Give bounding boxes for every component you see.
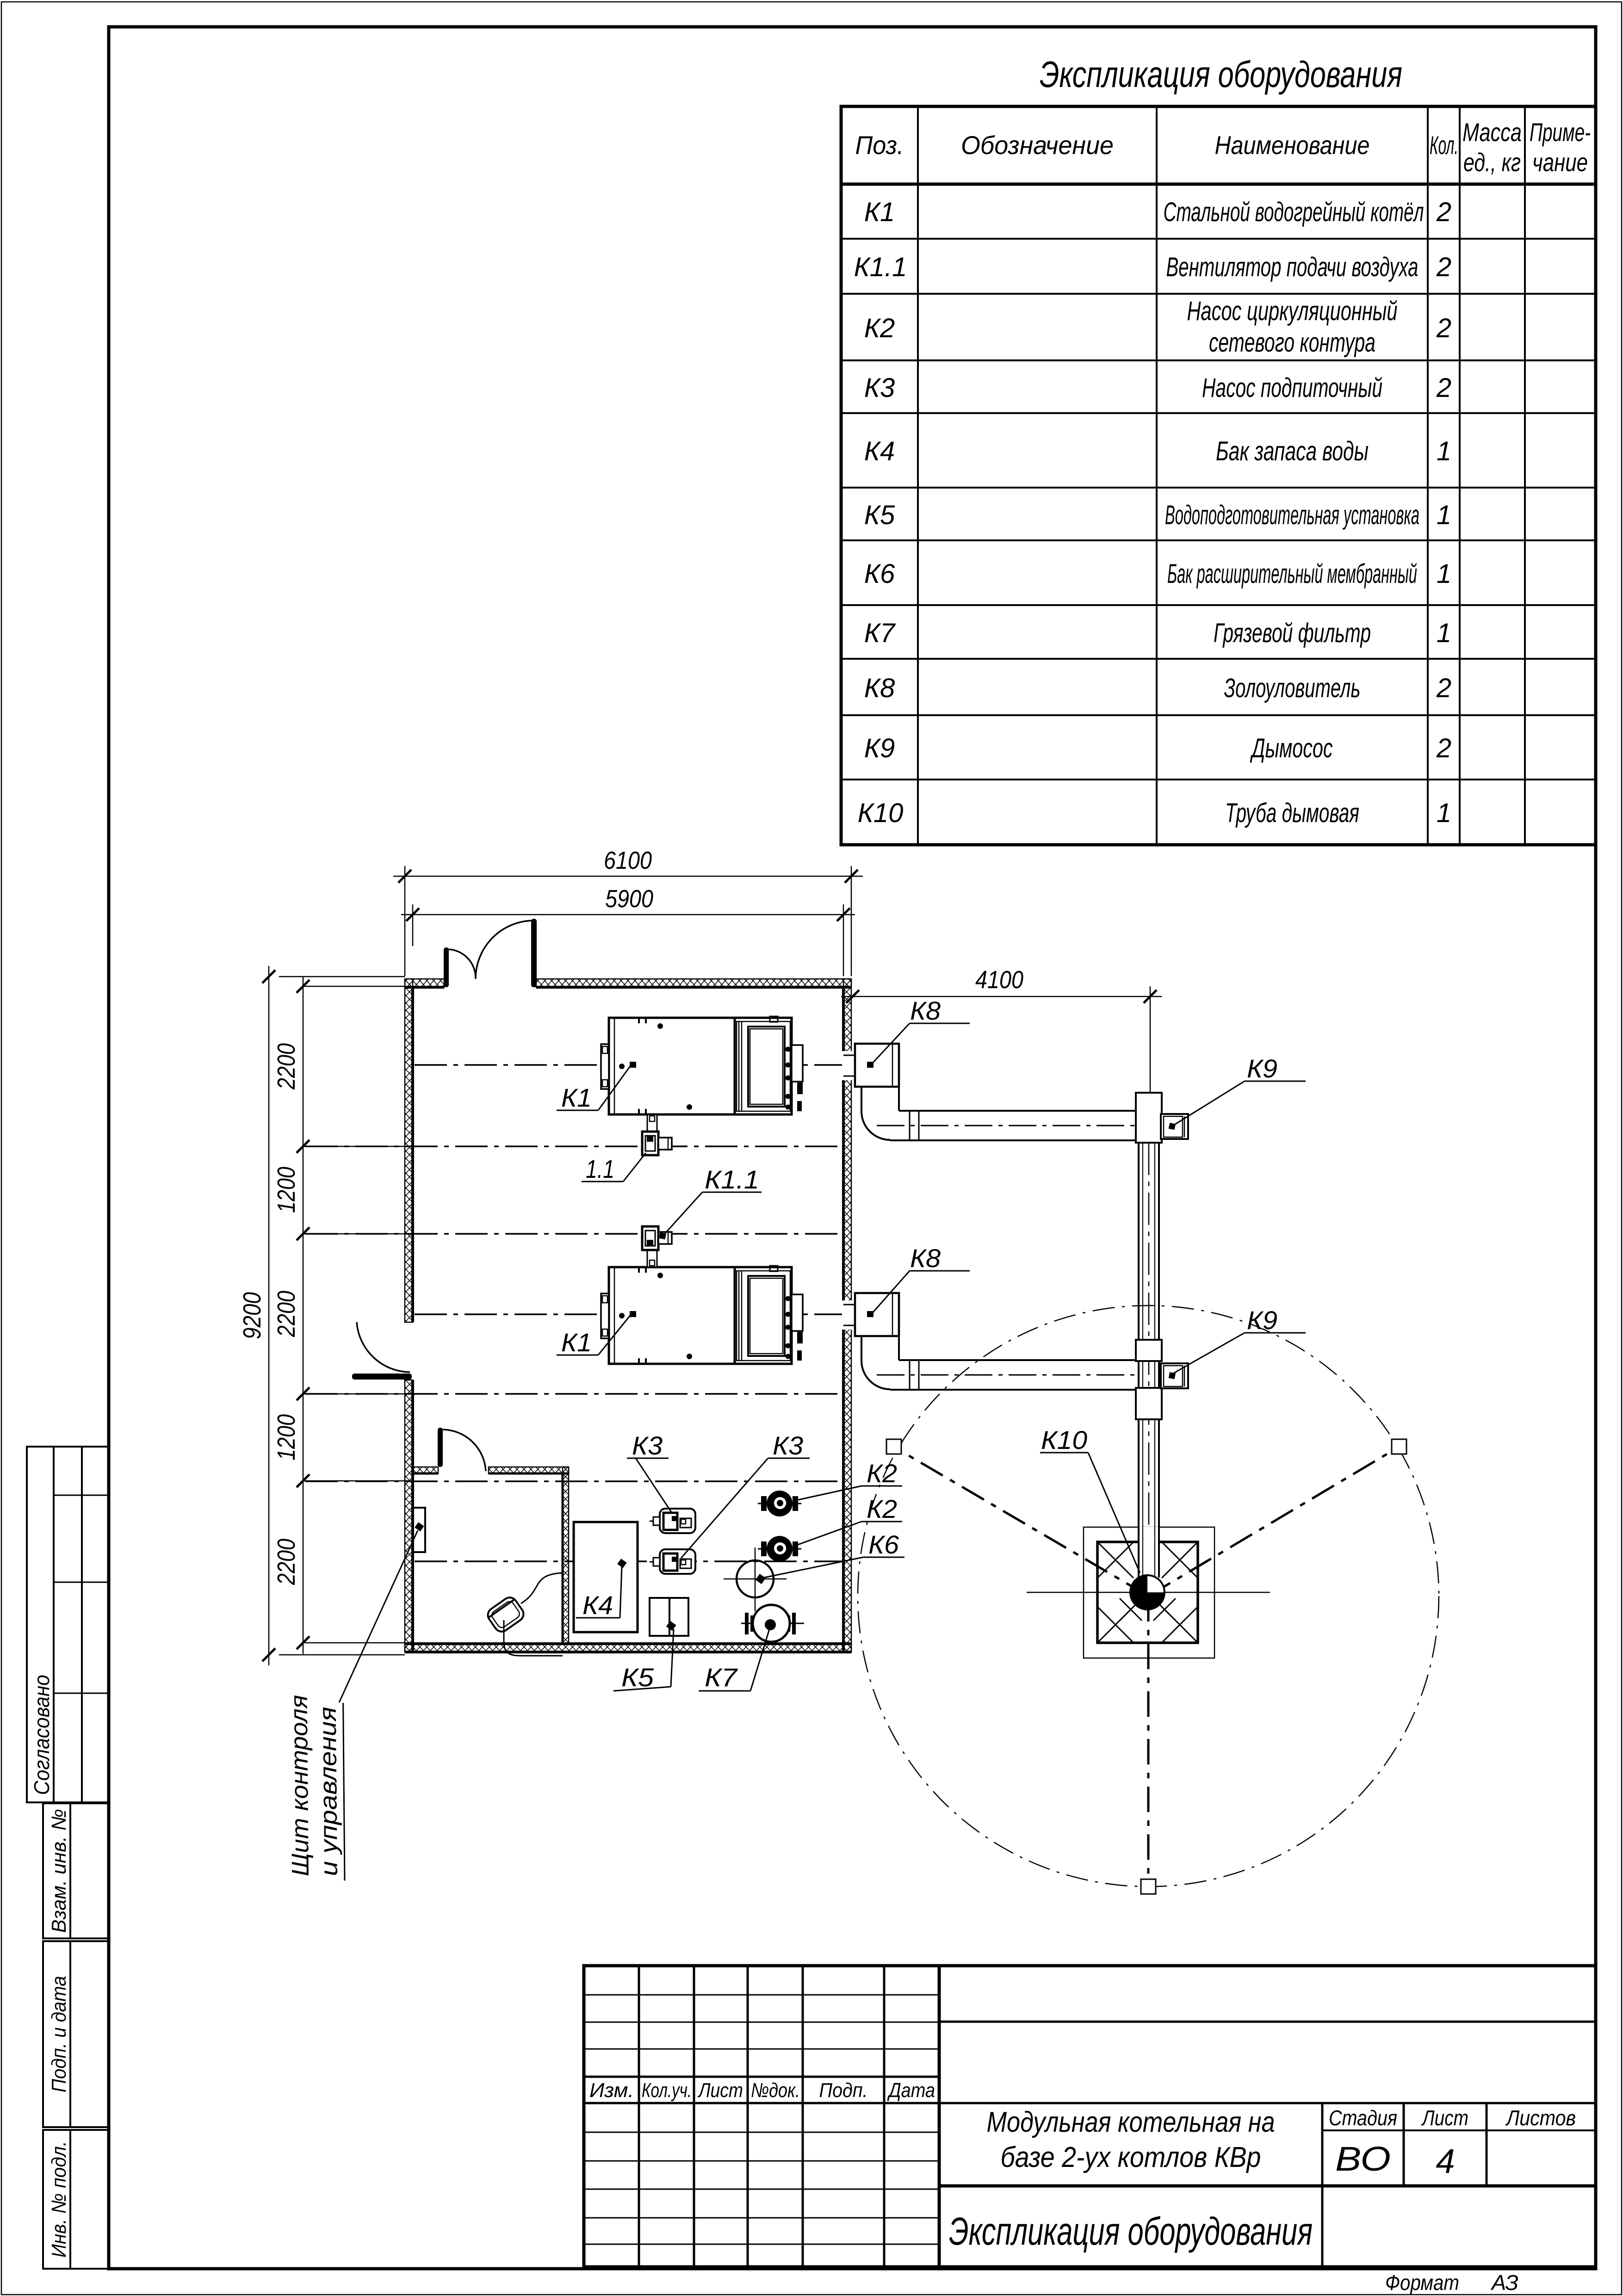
svg-text:Золоуловитель: Золоуловитель <box>1224 673 1361 703</box>
svg-text:2200: 2200 <box>273 1043 300 1090</box>
svg-text:К5: К5 <box>864 500 895 530</box>
svg-text:ВО: ВО <box>1335 2140 1391 2178</box>
svg-text:2200: 2200 <box>273 1539 300 1585</box>
svg-text:2: 2 <box>1436 373 1451 403</box>
svg-text:1: 1 <box>1437 500 1451 530</box>
svg-text:К1.1: К1.1 <box>705 1165 759 1194</box>
svg-text:4: 4 <box>1436 2142 1455 2180</box>
svg-text:Листов: Листов <box>1505 2106 1576 2130</box>
svg-text:Инв. № подл.: Инв. № подл. <box>48 2141 70 2258</box>
svg-text:К7: К7 <box>864 618 896 648</box>
svg-text:ед., кг: ед., кг <box>1463 148 1521 177</box>
svg-text:№док.: №док. <box>751 2079 800 2102</box>
svg-text:1: 1 <box>1437 559 1451 589</box>
svg-text:Стальной водогрейный котёл: Стальной водогрейный котёл <box>1164 197 1424 227</box>
svg-text:К2: К2 <box>867 1459 897 1488</box>
svg-text:Щит контроля: Щит контроля <box>285 1695 314 1876</box>
svg-text:К8: К8 <box>910 1244 941 1273</box>
svg-text:К8: К8 <box>864 673 895 703</box>
svg-text:Изм.: Изм. <box>589 2079 634 2102</box>
svg-text:К8: К8 <box>910 996 941 1025</box>
svg-text:Модульная котельная на: Модульная котельная на <box>987 2106 1275 2138</box>
svg-text:1: 1 <box>1437 436 1451 466</box>
svg-text:К3: К3 <box>632 1431 663 1460</box>
svg-text:Лист: Лист <box>697 2079 743 2102</box>
svg-text:К9: К9 <box>864 733 895 763</box>
svg-text:1: 1 <box>1437 798 1451 828</box>
svg-text:К6: К6 <box>864 559 895 589</box>
svg-text:сетевого контура: сетевого контура <box>1209 328 1375 358</box>
svg-text:Кол.уч.: Кол.уч. <box>642 2079 692 2102</box>
svg-text:чание: чание <box>1532 148 1588 177</box>
svg-text:Формат: Формат <box>1385 2271 1459 2295</box>
svg-text:1200: 1200 <box>273 1167 300 1213</box>
svg-text:Насос циркуляционный: Насос циркуляционный <box>1187 296 1398 326</box>
svg-text:Водоподготовительная установка: Водоподготовительная установка <box>1165 500 1419 530</box>
svg-text:Подп. и дата: Подп. и дата <box>48 1976 70 2092</box>
svg-text:Согласовано: Согласовано <box>30 1675 54 1795</box>
svg-text:К1.1: К1.1 <box>854 252 907 282</box>
svg-text:Экспликация оборудования: Экспликация оборудования <box>949 2209 1313 2253</box>
svg-text:К5: К5 <box>621 1663 654 1692</box>
svg-text:Кол.: Кол. <box>1430 130 1458 160</box>
svg-text:К10: К10 <box>1041 1425 1087 1454</box>
svg-text:5900: 5900 <box>605 885 653 913</box>
svg-text:Дымосос: Дымосос <box>1250 733 1332 763</box>
svg-text:Приме-: Приме- <box>1530 118 1591 147</box>
svg-text:К2: К2 <box>864 313 895 343</box>
svg-text:2: 2 <box>1436 197 1451 227</box>
svg-text:Бак запаса воды: Бак запаса воды <box>1216 436 1369 466</box>
svg-text:Стадия: Стадия <box>1329 2106 1397 2130</box>
svg-text:К9: К9 <box>1247 1054 1277 1083</box>
svg-text:1.1: 1.1 <box>586 1154 614 1183</box>
svg-text:1: 1 <box>1437 618 1451 648</box>
svg-text:2200: 2200 <box>273 1291 300 1337</box>
svg-text:2: 2 <box>1436 733 1451 763</box>
svg-text:базе 2-ух котлов КВр: базе 2-ух котлов КВр <box>1001 2141 1261 2173</box>
svg-text:Насос подпиточный: Насос подпиточный <box>1202 373 1382 403</box>
svg-text:Вентилятор подачи воздуха: Вентилятор подачи воздуха <box>1166 252 1419 282</box>
svg-text:К6: К6 <box>868 1530 899 1559</box>
svg-text:К3: К3 <box>864 373 895 403</box>
svg-text:и управления: и управления <box>315 1707 343 1876</box>
svg-text:Наименование: Наименование <box>1215 130 1370 160</box>
svg-text:Дата: Дата <box>887 2079 935 2102</box>
svg-text:2: 2 <box>1436 313 1451 343</box>
svg-text:Поз.: Поз. <box>855 130 904 160</box>
svg-text:Обозначение: Обозначение <box>961 130 1114 160</box>
svg-text:К4: К4 <box>864 436 895 466</box>
svg-text:9200: 9200 <box>238 1292 266 1339</box>
svg-text:Взам. инв. №: Взам. инв. № <box>48 1809 70 1933</box>
svg-text:К9: К9 <box>1247 1306 1277 1335</box>
svg-text:Грязевой фильтр: Грязевой фильтр <box>1214 618 1371 648</box>
svg-text:6100: 6100 <box>604 847 652 874</box>
svg-text:К3: К3 <box>773 1431 803 1460</box>
svg-text:К10: К10 <box>858 798 904 828</box>
svg-text:Труба дымовая: Труба дымовая <box>1225 798 1359 828</box>
svg-text:4100: 4100 <box>975 966 1023 994</box>
svg-text:2: 2 <box>1436 252 1451 282</box>
svg-text:1200: 1200 <box>273 1414 300 1461</box>
svg-text:2: 2 <box>1436 673 1451 703</box>
svg-text:Лист: Лист <box>1421 2106 1468 2130</box>
svg-text:Подп.: Подп. <box>819 2079 868 2102</box>
svg-text:Бак расширительный мембранный: Бак расширительный мембранный <box>1167 559 1417 589</box>
svg-text:Масса: Масса <box>1462 118 1522 147</box>
svg-text:Экспликация оборудования: Экспликация оборудования <box>1040 54 1402 95</box>
svg-text:К1: К1 <box>561 1083 592 1112</box>
svg-text:К7: К7 <box>705 1663 738 1692</box>
svg-text:АЗ: АЗ <box>1490 2271 1518 2295</box>
svg-text:К1: К1 <box>561 1328 592 1357</box>
svg-text:К1: К1 <box>864 197 895 227</box>
svg-text:К4: К4 <box>582 1590 613 1620</box>
